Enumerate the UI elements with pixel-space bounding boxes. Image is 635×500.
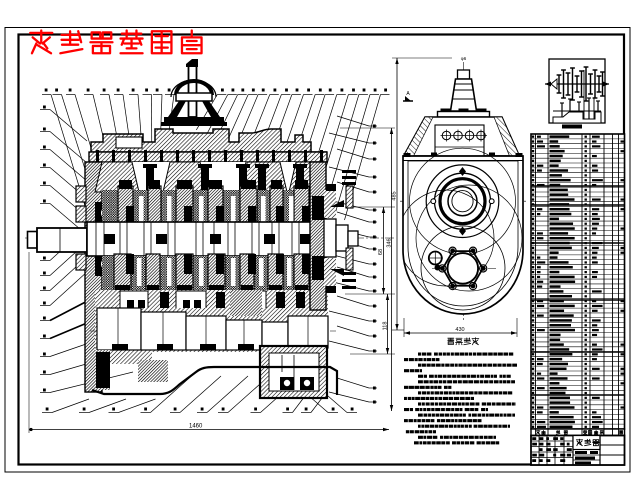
svg-text:118: 118 xyxy=(383,322,389,331)
svg-text:68: 68 xyxy=(378,249,384,255)
svg-text:346: 346 xyxy=(387,238,393,247)
svg-text:φ6: φ6 xyxy=(461,56,467,61)
svg-text:485: 485 xyxy=(392,191,398,200)
svg-text:A: A xyxy=(406,91,410,97)
svg-text:1460: 1460 xyxy=(189,424,203,430)
svg-text:430: 430 xyxy=(455,327,464,333)
